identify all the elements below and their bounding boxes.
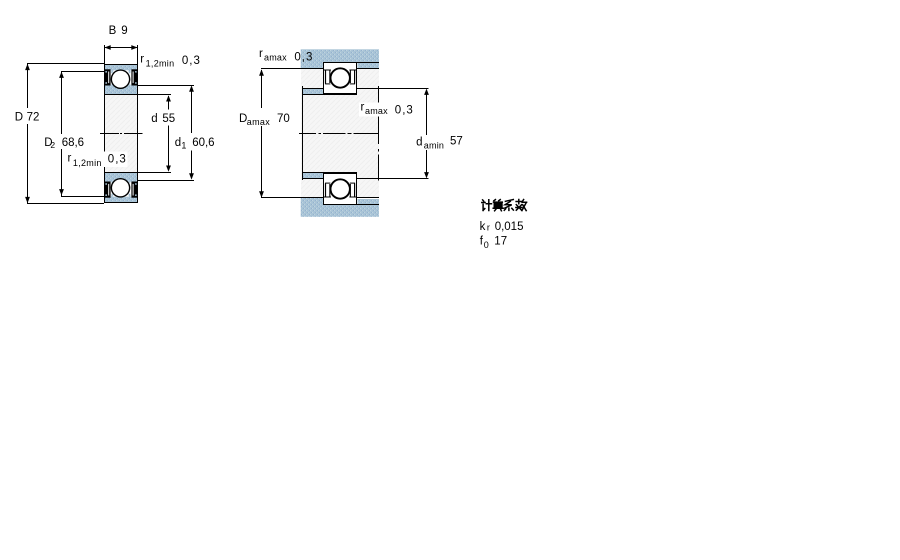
svg-text:amax: amax <box>264 53 287 63</box>
svg-text:d: d <box>416 136 422 148</box>
svg-text:amin: amin <box>424 140 444 150</box>
svg-text:r: r <box>140 54 144 66</box>
svg-text:70: 70 <box>277 113 290 125</box>
svg-text:72: 72 <box>27 111 40 123</box>
svg-text:2: 2 <box>50 140 55 150</box>
svg-text:0,3: 0,3 <box>108 154 127 166</box>
svg-text:d: d <box>175 137 181 149</box>
svg-text:r: r <box>487 222 490 232</box>
svg-text:57: 57 <box>450 136 463 148</box>
svg-text:1: 1 <box>181 140 186 150</box>
svg-text:0,3: 0,3 <box>182 55 201 67</box>
svg-text:B: B <box>109 25 117 37</box>
svg-text:0: 0 <box>484 240 489 250</box>
svg-text:55: 55 <box>162 113 175 125</box>
svg-text:amax: amax <box>247 117 270 127</box>
svg-text:r: r <box>361 101 365 113</box>
svg-text:9: 9 <box>121 25 127 37</box>
svg-text:0,3: 0,3 <box>395 104 414 116</box>
svg-text:1,2min: 1,2min <box>146 59 175 69</box>
svg-text:d: d <box>151 113 157 125</box>
svg-text:r: r <box>68 153 72 165</box>
svg-text:r: r <box>259 48 263 60</box>
svg-text:17: 17 <box>494 236 507 248</box>
svg-text:68,6: 68,6 <box>62 137 84 149</box>
svg-text:1,2min: 1,2min <box>73 158 102 168</box>
svg-text:amax: amax <box>365 106 388 116</box>
svg-text:0,015: 0,015 <box>495 221 524 233</box>
svg-text:0,3: 0,3 <box>294 51 313 63</box>
svg-text:D: D <box>15 111 23 123</box>
svg-text:60,6: 60,6 <box>192 137 214 149</box>
svg-text:k: k <box>480 221 486 233</box>
